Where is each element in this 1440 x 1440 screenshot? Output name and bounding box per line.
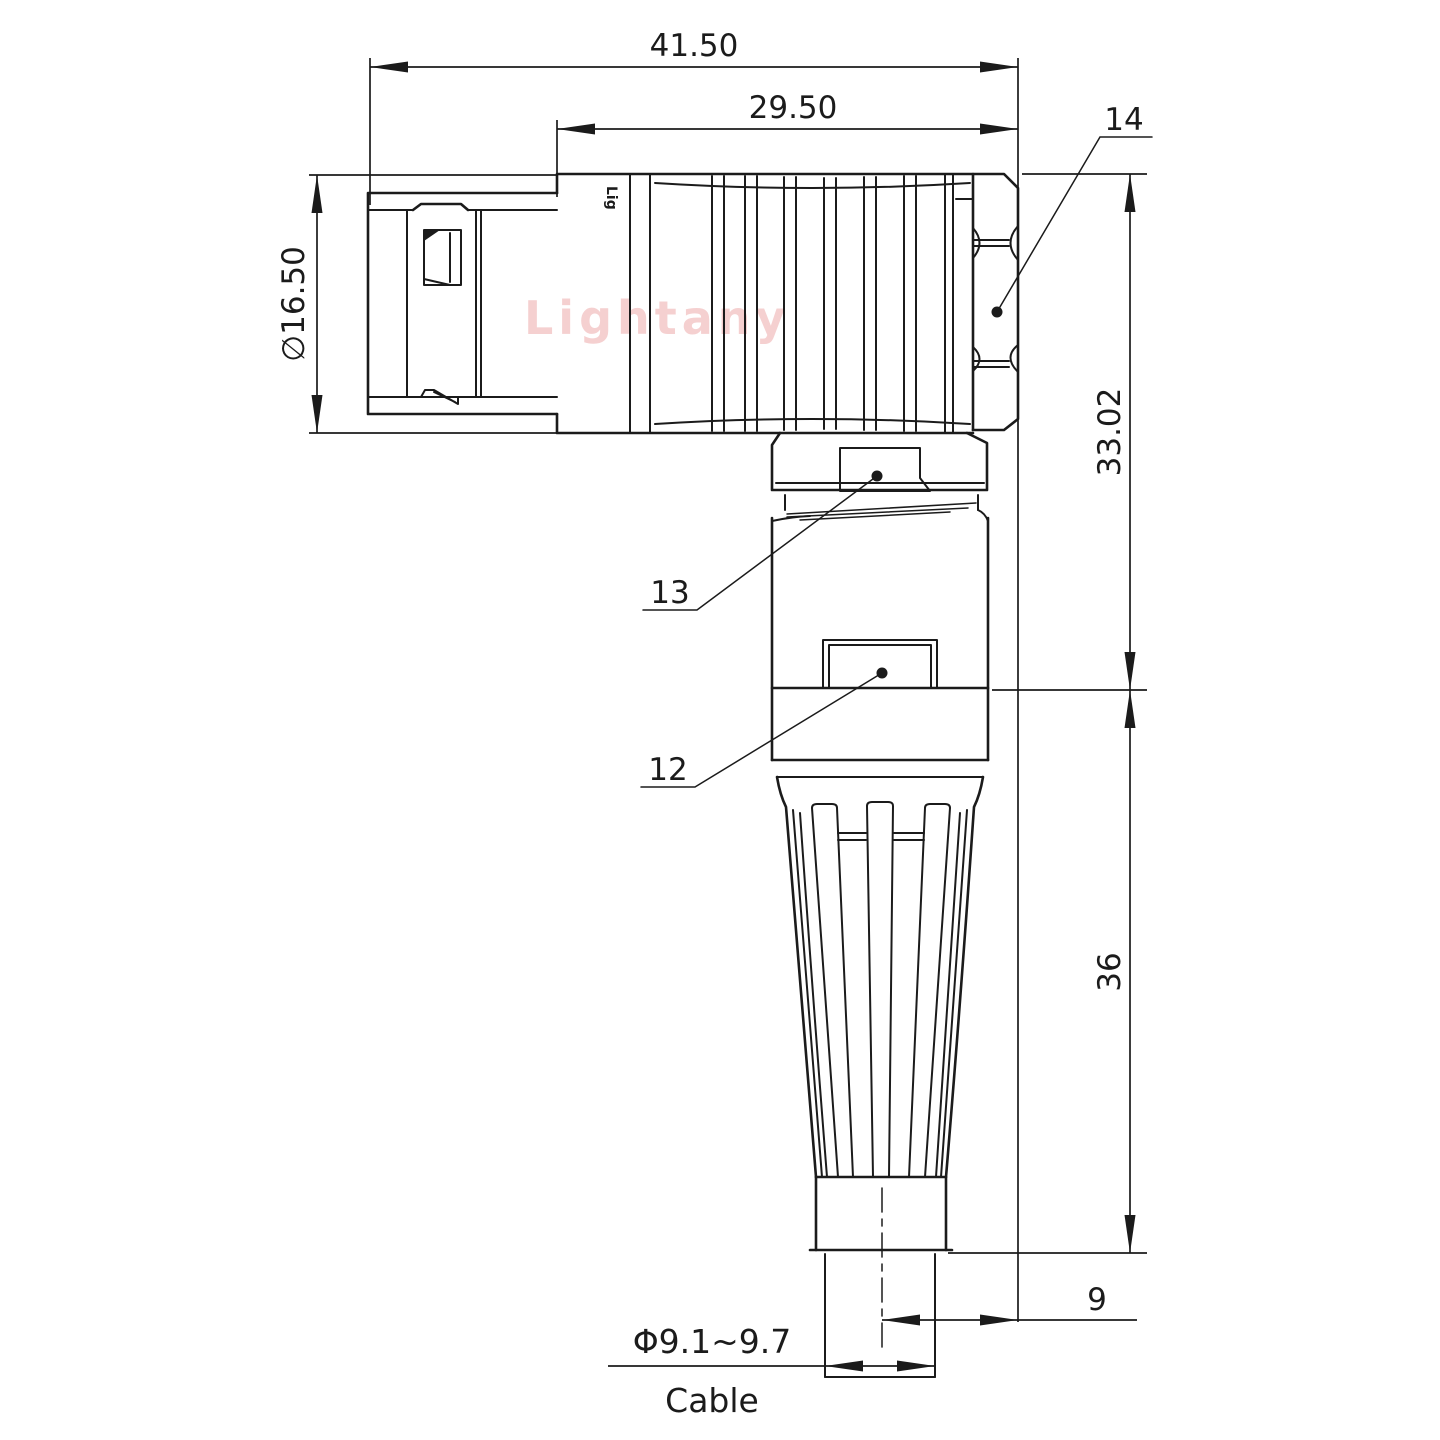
boot-flute <box>867 802 893 1177</box>
brand-mark-text: Lig <box>603 186 619 210</box>
callout-12-label: 12 <box>648 752 687 788</box>
dimension-lower-height: 36 <box>948 690 1147 1253</box>
hex-nut <box>956 174 1018 430</box>
callout-12: 12 <box>641 668 888 789</box>
dim-upper-height-label: 33.02 <box>1092 388 1128 477</box>
bayonet-slot <box>424 230 461 285</box>
boot-web <box>838 833 924 840</box>
connector-dimension-drawing: Lightany Lig <box>0 0 1440 1440</box>
strain-relief-boot <box>777 777 983 1177</box>
dim-front-length-label: 29.50 <box>749 90 838 126</box>
dimension-cable-offset: 9 <box>882 1282 1137 1326</box>
callout-13-label: 13 <box>650 575 689 611</box>
body-wrench-flat <box>823 640 937 688</box>
dim-overall-length-label: 41.50 <box>650 28 739 64</box>
cable-label: Cable <box>665 1381 759 1420</box>
thread-band <box>772 495 988 521</box>
technical-drawing-page: Lightany Lig <box>0 0 1440 1440</box>
cable-ferrule <box>810 1177 952 1250</box>
body-barrel <box>772 518 988 777</box>
dim-cable-offset-label: 9 <box>1087 1282 1107 1318</box>
dim-shell-diameter-label: ∅16.50 <box>276 246 312 362</box>
collar-wrench-flat <box>840 448 930 491</box>
dim-cable-diameter-label: Φ9.1~9.7 <box>633 1322 792 1361</box>
dimension-upper-height: 33.02 <box>992 174 1147 690</box>
boot-flute <box>909 804 950 1177</box>
elbow-body <box>772 433 988 1377</box>
callout-14-label: 14 <box>1104 102 1143 138</box>
dimension-cable-diameter: Φ9.1~9.7 Cable <box>608 1322 935 1420</box>
bayonet-pin-hump <box>413 204 468 210</box>
dimension-front-length: 29.50 <box>557 90 1018 197</box>
dimension-shell-diameter: ∅16.50 <box>276 175 557 433</box>
dimension-overall-length: 41.50 <box>370 28 1018 1322</box>
coupling-collar <box>772 433 987 491</box>
dim-lower-height-label: 36 <box>1092 952 1128 991</box>
watermark-text: Lightany <box>524 291 791 345</box>
